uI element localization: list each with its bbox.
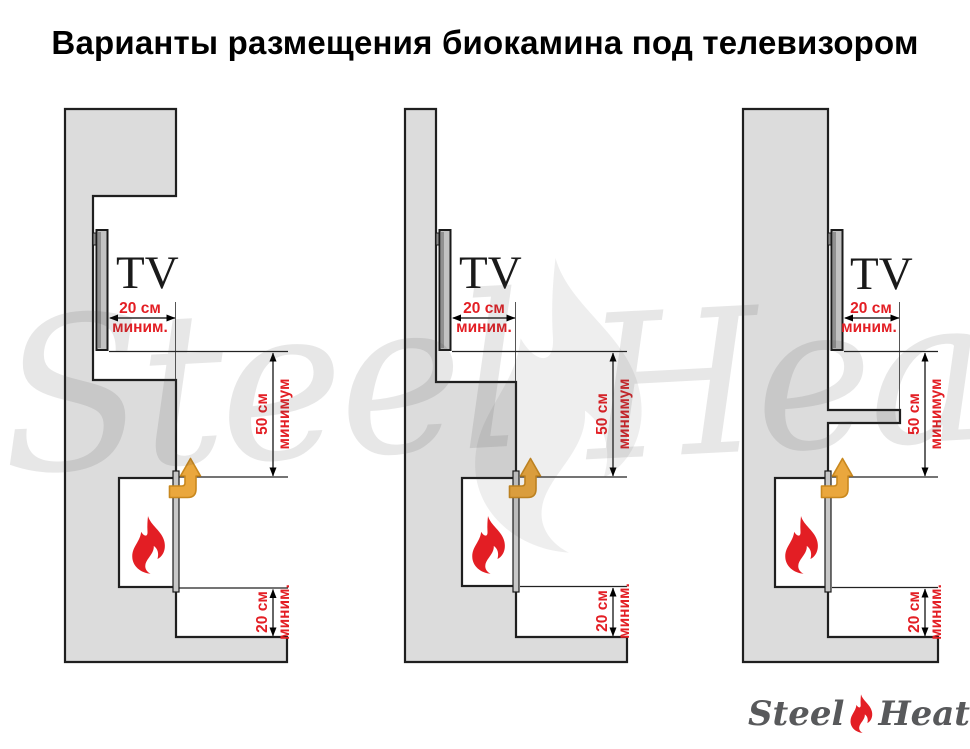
logo-heat-text: Heat <box>878 697 970 731</box>
dimension-qualifier: миним. <box>456 319 512 336</box>
dimension-value: 20 см <box>594 590 611 632</box>
logo-steel-text: Steel <box>748 697 844 731</box>
dimension-qualifier: миним. <box>928 584 945 640</box>
dimension-qualifier: миним. <box>276 584 293 640</box>
dimension-tv-fireplace-gap: 50 см минимум <box>254 353 293 477</box>
dimension-tv-depth: 20 см миним. <box>841 300 899 409</box>
variant-2-diagram: TV 20 см миним. 50 см минимум <box>405 109 633 662</box>
dimension-value: 50 см <box>906 393 923 435</box>
dimension-tv-fireplace-gap: 50 см минимум <box>594 353 633 477</box>
dimension-qualifier: минимум <box>928 378 945 449</box>
tv-screen-shade <box>98 232 101 348</box>
arrowhead-right-icon <box>167 315 176 322</box>
arrowhead-down-icon <box>610 468 617 477</box>
dimension-value: 20 см <box>119 300 161 317</box>
dimension-tv-depth: 20 см миним. <box>452 300 516 381</box>
arrowhead-up-icon <box>610 353 617 362</box>
infographic-page: Варианты размещения биокамина под телеви… <box>0 0 970 749</box>
variant-3-diagram: TV 20 см миним. 50 см минимум <box>743 109 945 662</box>
tv-label: TV <box>459 247 522 299</box>
logo-flame-shape <box>851 694 873 733</box>
dimension-fireplace-floor-gap: 20 см миним. <box>906 584 945 640</box>
steelheat-logo: Steel Heat <box>748 694 970 734</box>
dimension-value: 50 см <box>594 393 611 435</box>
diagram-canvas: TV 20 см миним. 50 см минимум <box>0 0 970 749</box>
arrowhead-up-icon <box>270 353 277 362</box>
variant-1-diagram: TV 20 см миним. 50 см минимум <box>65 109 293 662</box>
dimension-value: 20 см <box>463 300 505 317</box>
arrowhead-down-icon <box>270 468 277 477</box>
dimension-qualifier: минимум <box>616 378 633 449</box>
tv-screen-shade <box>833 232 836 348</box>
arrowhead-down-icon <box>922 468 929 477</box>
dimension-value: 50 см <box>254 393 271 435</box>
tv-screen-shade <box>441 232 444 348</box>
fireplace-box <box>119 478 176 587</box>
dimension-value: 20 см <box>906 591 923 633</box>
dimension-qualifier: миним. <box>616 583 633 639</box>
dimension-fireplace-floor-gap: 20 см миним. <box>254 584 293 640</box>
dimension-tv-fireplace-gap: 50 см минимум <box>906 353 945 477</box>
dimension-qualifier: миним. <box>112 319 168 336</box>
tv-label: TV <box>850 248 913 300</box>
dimension-fireplace-floor-gap: 20 см миним. <box>594 583 633 639</box>
dimension-qualifier: миним. <box>841 319 897 336</box>
dimension-value: 20 см <box>254 591 271 633</box>
wall-profile <box>743 109 938 662</box>
dimension-value: 20 см <box>850 300 892 317</box>
arrowhead-up-icon <box>922 353 929 362</box>
tv-label: TV <box>116 247 179 299</box>
logo-flame-icon <box>847 694 875 734</box>
dimension-tv-depth: 20 см миним. <box>109 300 176 379</box>
dimension-qualifier: минимум <box>276 378 293 449</box>
